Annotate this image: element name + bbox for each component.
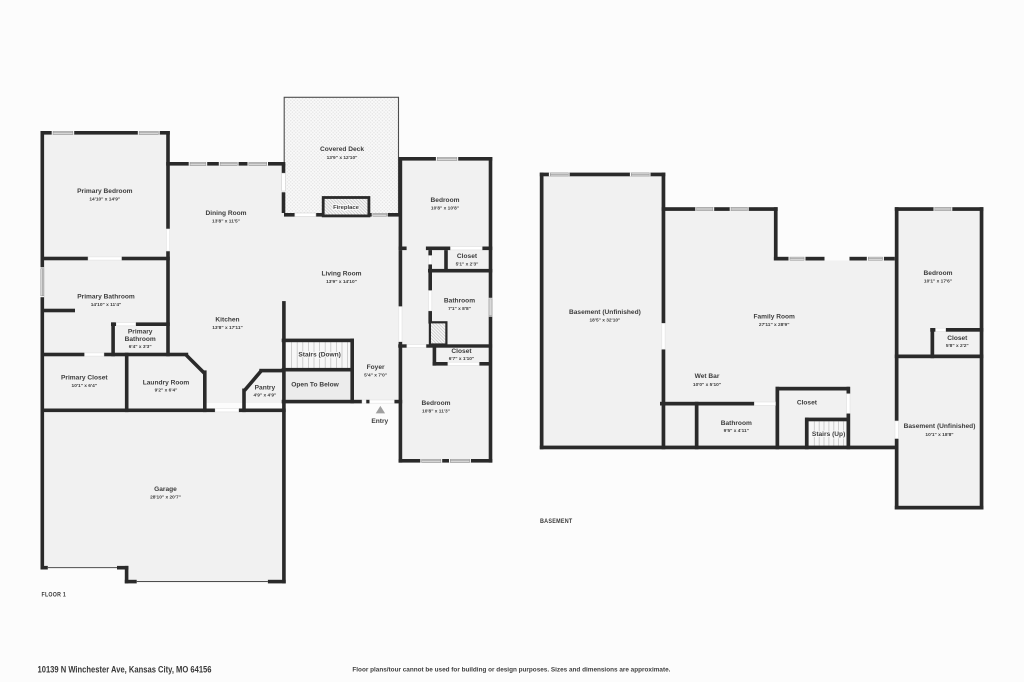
svg-text:Open To Below: Open To Below	[291, 382, 339, 389]
svg-text:Bedroom: Bedroom	[422, 400, 451, 407]
svg-text:Dining Room: Dining Room	[205, 210, 246, 217]
svg-text:Covered Deck: Covered Deck	[320, 146, 364, 153]
svg-text:10'0" x 5'10": 10'0" x 5'10"	[693, 382, 721, 388]
svg-text:Closet: Closet	[947, 335, 968, 342]
svg-text:10'1" x 6'4": 10'1" x 6'4"	[72, 383, 98, 389]
svg-text:Kitchen: Kitchen	[215, 316, 239, 323]
svg-text:4'9" x 4'9": 4'9" x 4'9"	[253, 393, 276, 399]
svg-text:13'8" x 11'5": 13'8" x 11'5"	[212, 219, 240, 225]
svg-text:Wet Bar: Wet Bar	[695, 373, 720, 380]
svg-text:Bedroom: Bedroom	[431, 197, 460, 204]
svg-text:14'10" x 14'9": 14'10" x 14'9"	[89, 197, 120, 203]
svg-text:Pantry: Pantry	[255, 384, 276, 391]
svg-text:Bedroom: Bedroom	[924, 270, 953, 277]
svg-text:Basement (Unfinished): Basement (Unfinished)	[569, 309, 641, 316]
svg-text:Living Room: Living Room	[322, 271, 362, 278]
svg-text:Basement (Unfinished): Basement (Unfinished)	[904, 423, 976, 430]
svg-text:FLOOR 1: FLOOR 1	[42, 592, 67, 599]
svg-text:28'10" x 20'7": 28'10" x 20'7"	[150, 495, 181, 501]
svg-text:5'1" x 2'3": 5'1" x 2'3"	[456, 261, 479, 267]
svg-text:6'4" x 3'3": 6'4" x 3'3"	[129, 344, 152, 350]
svg-text:13'9" x 12'10": 13'9" x 12'10"	[327, 155, 358, 161]
svg-text:Family Room: Family Room	[753, 313, 795, 320]
svg-text:Garage: Garage	[154, 486, 177, 493]
svg-text:Stairs (Up): Stairs (Up)	[812, 431, 845, 438]
svg-text:Closet: Closet	[457, 253, 478, 260]
svg-text:Closet: Closet	[797, 399, 818, 406]
svg-text:Entry: Entry	[371, 418, 388, 425]
svg-text:7'1" x 8'8": 7'1" x 8'8"	[448, 306, 471, 312]
svg-text:14'10" x 11'4": 14'10" x 11'4"	[91, 302, 122, 308]
svg-text:9'2" x 6'4": 9'2" x 6'4"	[155, 387, 178, 393]
svg-text:Primary Closet: Primary Closet	[61, 374, 108, 381]
svg-text:Primary: Primary	[128, 328, 153, 335]
svg-text:27'11" x 28'9": 27'11" x 28'9"	[759, 322, 790, 328]
svg-text:9'5" x 4'11": 9'5" x 4'11"	[724, 428, 749, 434]
svg-text:10'8" x 11'3": 10'8" x 11'3"	[422, 409, 450, 415]
svg-text:5'4" x 7'0": 5'4" x 7'0"	[364, 372, 387, 378]
svg-text:10139 N Winchester Ave, Kansas: 10139 N Winchester Ave, Kansas City, MO …	[38, 664, 212, 674]
svg-text:BASEMENT: BASEMENT	[540, 518, 573, 525]
svg-text:Bathroom: Bathroom	[125, 336, 156, 343]
svg-text:Stairs (Down): Stairs (Down)	[298, 352, 341, 359]
svg-text:Primary Bedroom: Primary Bedroom	[77, 188, 132, 195]
svg-text:10'8" x 10'8": 10'8" x 10'8"	[431, 206, 459, 212]
svg-text:Floor plans/tour cannot be use: Floor plans/tour cannot be used for buil…	[352, 667, 670, 674]
svg-text:Foyer: Foyer	[367, 364, 385, 371]
svg-text:Laundry Room: Laundry Room	[143, 379, 190, 386]
svg-text:10'1" x 17'6": 10'1" x 17'6"	[924, 278, 952, 284]
svg-text:5'8" x 2'2": 5'8" x 2'2"	[946, 343, 969, 349]
svg-text:10'1" x 18'8": 10'1" x 18'8"	[925, 432, 953, 438]
svg-text:6'7" x 1'10": 6'7" x 1'10"	[449, 356, 475, 362]
svg-text:18'5" x 32'10": 18'5" x 32'10"	[589, 318, 620, 324]
svg-text:Bathroom: Bathroom	[721, 420, 752, 427]
svg-text:Bathroom: Bathroom	[444, 297, 475, 304]
svg-text:Primary Bathroom: Primary Bathroom	[77, 293, 135, 300]
svg-text:Fireplace: Fireplace	[333, 205, 360, 211]
svg-text:Closet: Closet	[451, 348, 472, 355]
svg-text:13'8" x 17'11": 13'8" x 17'11"	[212, 325, 243, 331]
svg-text:13'9" x 14'10": 13'9" x 14'10"	[326, 279, 357, 285]
